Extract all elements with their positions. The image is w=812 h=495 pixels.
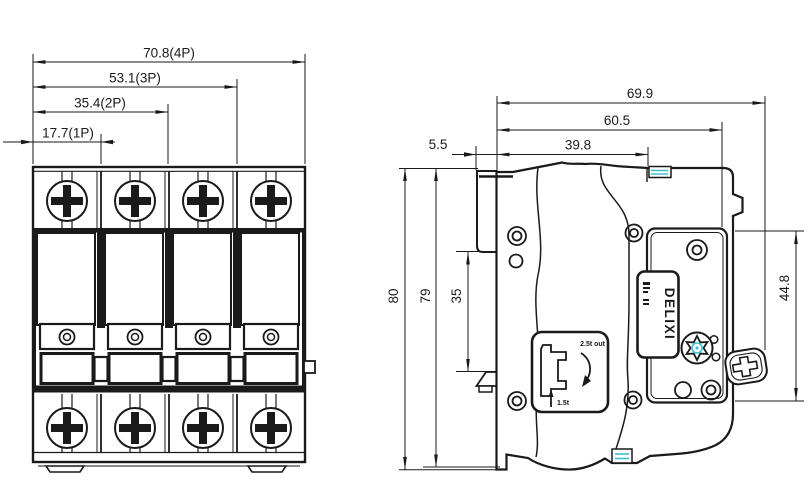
side-toggle-handle	[724, 347, 769, 386]
dim-label-height-body: 79	[418, 288, 433, 303]
terminal-screw	[115, 394, 155, 452]
breaker-pole	[105, 233, 163, 325]
terminal-screw	[251, 394, 291, 452]
breaker-pole	[37, 233, 95, 325]
dim-label-width-face: 60.5	[604, 113, 630, 128]
top-terminal-row	[47, 171, 291, 228]
dim-label-rail-slot: 35	[449, 288, 464, 303]
padlock-window	[108, 324, 162, 350]
dim-label-2p: 35.4(2P)	[74, 96, 126, 111]
mounting-foot	[46, 466, 84, 472]
brand-text: DELIXI	[662, 288, 677, 341]
emblem-top-text: 2.5t out	[580, 341, 606, 348]
bottom-terminal-opening	[612, 449, 632, 463]
padlock-window	[40, 324, 94, 350]
dim-label-height-total: 80	[386, 288, 401, 303]
padlock-window	[244, 324, 298, 350]
breaker-dimension-drawing: 70.8(4P) 53.1(3P) 35.4(2P) 17.7(1P)	[0, 0, 812, 495]
star-knob	[682, 333, 713, 364]
front-view: 70.8(4P) 53.1(3P) 35.4(2P) 17.7(1P)	[3, 46, 315, 473]
dim-label-1p: 17.7(1P)	[42, 126, 94, 141]
toggle-handle	[245, 354, 297, 384]
dim-label-4p: 70.8(4P)	[143, 46, 195, 61]
front-dimensions: 70.8(4P) 53.1(3P) 35.4(2P) 17.7(1P)	[3, 46, 305, 165]
terminal-screw	[47, 171, 87, 228]
toggle-handle	[109, 354, 161, 384]
brand-label: DELIXI	[638, 272, 679, 358]
handle-tie-bar	[231, 357, 244, 381]
terminal-screw	[47, 394, 87, 452]
breaker-pole	[241, 233, 299, 325]
terminal-screw	[183, 171, 223, 228]
handle-tie-bar	[163, 357, 176, 381]
bottom-terminal-row	[34, 394, 304, 472]
mount-emblem: 2.5t out 1.5t	[532, 332, 608, 412]
breaker-pole	[173, 233, 231, 325]
terminal-screw	[183, 394, 223, 452]
dim-label-rail-tab: 5.5	[429, 137, 448, 152]
handle-tie-bar	[95, 357, 108, 381]
dim-label-face-height: 44.8	[777, 275, 792, 301]
top-terminal-opening	[649, 167, 671, 178]
dim-label-width-body: 39.8	[565, 138, 591, 153]
padlock-window	[176, 324, 230, 350]
terminal-screw	[251, 171, 291, 228]
handle-recess-edge	[33, 386, 305, 393]
mounting-foot	[248, 466, 286, 472]
din-rail-lower-claw	[477, 372, 497, 386]
technical-drawing-canvas: 70.8(4P) 53.1(3P) 35.4(2P) 17.7(1P)	[0, 0, 812, 495]
side-step-notch	[304, 361, 315, 373]
dim-label-width-total: 69.9	[627, 86, 653, 101]
din-rail-clip-spring	[479, 386, 492, 392]
toggle-handle	[177, 354, 229, 384]
din-rail-upper-claw	[477, 171, 497, 252]
dim-label-3p: 53.1(3P)	[109, 71, 161, 86]
terminal-screw	[115, 171, 155, 228]
side-view: DELIXI 2.5t out 1.5t	[386, 86, 804, 470]
toggle-handle	[41, 354, 93, 384]
emblem-bottom-text: 1.5t	[557, 400, 570, 407]
toggle-handle-row	[41, 354, 315, 384]
